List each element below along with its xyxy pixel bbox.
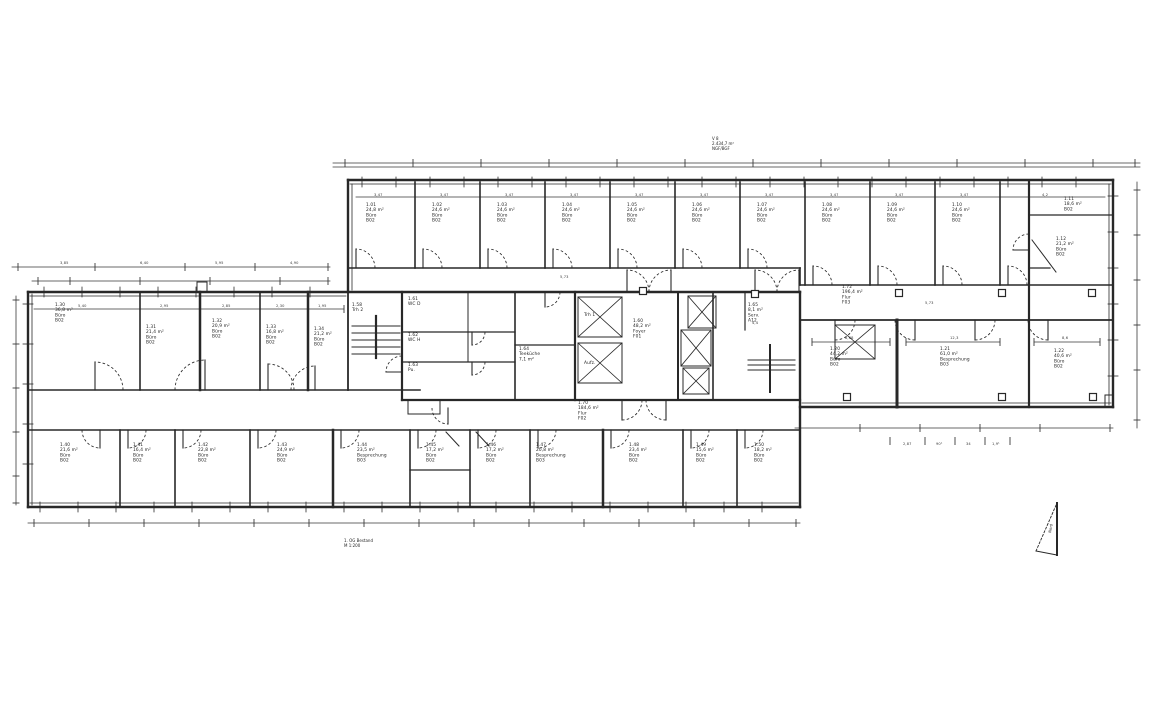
dim-number: 3,47 (700, 193, 709, 197)
door-swing-arc (545, 292, 560, 307)
room-label: 1.2161,0 m²BesprechungB03 (940, 346, 970, 368)
room-label: 1.4720,8 m²BesprechungB03 (536, 442, 566, 464)
dim-number: 4,90 (290, 261, 299, 265)
door-swing-arc (356, 249, 375, 268)
door-swing-arc (472, 332, 485, 345)
door-swing-arc (258, 430, 276, 448)
room-label: 1.6048,2 m²FoyerF01 (633, 318, 651, 340)
north-arrow-icon: Nord (1047, 523, 1054, 533)
dim-number: 4,2 (1042, 193, 1048, 197)
column-symbol (1090, 394, 1097, 401)
annotation-bottom: 1. OG Bestand M 1:200 (344, 538, 373, 548)
dim-number: 6,40 (140, 261, 149, 265)
room-label: 1.61WC D (408, 296, 421, 307)
dim-number: 8,6 (1062, 336, 1069, 340)
room-label: 1.4617,2 m²BüroB02 (486, 442, 504, 464)
room-label: 1.1118,6 m²B02 (1064, 196, 1082, 212)
door-swing-arc (683, 249, 702, 268)
door-swing-arc (975, 320, 995, 340)
column-symbol (1089, 290, 1096, 297)
dim-number: 3,47 (895, 193, 904, 197)
room-label: 1.0124,8 m²BüroB02 (366, 202, 384, 224)
room-label: 1.0324,6 m²BüroB02 (497, 202, 515, 224)
dim-number: 90¹ (936, 442, 943, 446)
room-label: 1.4021,6 m²BüroB02 (60, 442, 78, 464)
dim-number: 5,40 (78, 304, 87, 308)
room-label: 1.4116,4 m²BüroB02 (133, 442, 151, 464)
room-label: Trh 1 (583, 312, 595, 318)
dim-number: 3,47 (505, 193, 514, 197)
dim-number: 3,47 (830, 193, 839, 197)
door-swing-arc (755, 270, 777, 292)
door-swing-arc (618, 249, 637, 268)
door-swing-arc (1008, 266, 1027, 285)
exterior-walls (28, 180, 1113, 507)
detail-line (446, 432, 459, 446)
room-label: 1.0424,6 m²BüroB02 (562, 202, 580, 224)
north-arrow-hypotenuse (1036, 503, 1057, 551)
dim-number: 3,47 (960, 193, 969, 197)
door-swing-arc (1013, 234, 1029, 250)
room-label: 1.3316,8 m²BüroB02 (266, 324, 284, 346)
room-label: 1.63Pu. (408, 362, 418, 373)
room-label: 1.3121,4 m²BüroB02 (146, 324, 164, 346)
column-symbol (999, 394, 1006, 401)
dim-number: 3,47 (635, 193, 644, 197)
dim-number: 1,9¹ (992, 442, 1000, 446)
room-label: 1.4517,2 m²BüroB02 (426, 442, 444, 464)
column-symbol (844, 394, 851, 401)
room-label: 1.58Trh 2 (351, 302, 363, 313)
column-symbol (640, 288, 647, 295)
door-swing-arc (488, 249, 507, 268)
dim-number: 3,47 (440, 193, 449, 197)
north-arrow-base (1036, 551, 1057, 555)
floor-plan-canvas: 3,473,473,473,473,473,473,473,473,473,47… (0, 0, 1150, 720)
door-swing-arc (553, 249, 572, 268)
door-swing-arc (943, 266, 962, 285)
door-swing-arc (878, 266, 897, 285)
room-label: 1.62WC H (408, 332, 420, 343)
room-label: 1.0624,6 m²BüroB02 (692, 202, 710, 224)
detail-lines (197, 240, 1113, 446)
room-label: 1.3036,8 m²BüroB02 (55, 302, 73, 324)
room-label: 1.0824,6 m²BüroB02 (822, 202, 840, 224)
room-label: 1.72196,4 m²FlurF03 (842, 284, 863, 306)
annotation-line: NGF/BGF (712, 146, 734, 151)
door-swing-arc (268, 364, 294, 390)
shaft-boxes (578, 296, 875, 394)
room-label: 1.4423,5 m²BesprechungB03 (357, 442, 387, 464)
room-label: 1.2044,2 m²BüroB02 (830, 346, 848, 368)
door-swing-arc (82, 430, 100, 448)
door-swing-arc (291, 366, 315, 390)
room-label: 1.0724,6 m²BüroB02 (757, 202, 775, 224)
dim-number: 12,3 (950, 336, 959, 340)
room-label: 1.70184,6 m²FlurF02 (578, 400, 599, 422)
room-label: 1.3220,9 m²BüroB02 (212, 318, 230, 340)
dim-number: 3,47 (765, 193, 774, 197)
room-label: 1.4324,9 m²BüroB02 (277, 442, 295, 464)
room-label: 1.0524,6 m²BüroB02 (627, 202, 645, 224)
detail-line (1032, 240, 1056, 272)
dim-number: 34 (966, 442, 971, 446)
door-swing-arc (646, 400, 666, 420)
door-swing-arc (611, 430, 629, 448)
dim-number: 1,95 (318, 304, 327, 308)
room-label: 1.4915,6 m²BüroB02 (696, 442, 714, 464)
door-swing-arc (386, 356, 402, 372)
room-label: 1.4222,8 m²BüroB02 (198, 442, 216, 464)
door-swing-arc (777, 270, 799, 292)
room-label: 1.1024,6 m²BüroB02 (952, 202, 970, 224)
interior-walls (28, 182, 1113, 507)
door-swing-arc (622, 400, 642, 420)
floor-plan-drawing: 3,473,473,473,473,473,473,473,473,473,47… (0, 0, 1150, 720)
dim-number: 2,30 (276, 304, 285, 308)
room-label: 1.64Teeküche7,1 m² (518, 346, 540, 362)
dim-number: 2,95 (160, 304, 169, 308)
north-arrow: Nord (1036, 503, 1057, 555)
annotation-top: V 8 2.434,7 m² NGF/BGF (712, 136, 734, 151)
door-swing-arc (649, 270, 671, 292)
room-label: 1.3421,2 m²BüroB02 (314, 326, 332, 348)
room-label: 1.4823,4 m²BüroB02 (629, 442, 647, 464)
door-swing-arc (423, 249, 442, 268)
annotation-line: M 1:200 (344, 543, 373, 548)
room-label: 1.0224,6 m²BüroB02 (432, 202, 450, 224)
dim-number: 5,73 (560, 275, 569, 279)
dim-number: 5,95 (215, 261, 224, 265)
dim-number: 3,85 (60, 261, 69, 265)
column-symbol (999, 290, 1006, 297)
room-labels: 1.0124,8 m²BüroB021.0224,6 m²BüroB021.03… (55, 196, 1082, 464)
dim-number: 2,85 (222, 304, 231, 308)
room-label: 1.5018,2 m²BüroB02 (754, 442, 772, 464)
room-label: 1.0924,6 m²BüroB02 (887, 202, 905, 224)
column-symbol (752, 291, 759, 298)
door-swing-arc (95, 362, 123, 390)
door-swing-arc (813, 266, 832, 285)
door-swing-arc (472, 362, 485, 375)
dim-number: 3,47 (374, 193, 383, 197)
door-arcs (82, 234, 1048, 448)
door-swing-arc (748, 249, 767, 268)
room-label: 1.658,1 m²Serv.A12 (748, 302, 763, 324)
room-label: 1.1221,2 m²BüroB02 (1056, 236, 1074, 258)
dim-number: 3,47 (570, 193, 579, 197)
dim-number: 2,87 (903, 442, 912, 446)
dim-number: 5,73 (925, 301, 934, 305)
column-symbol (896, 290, 903, 297)
room-label: 1.2240,6 m²BüroB02 (1054, 348, 1072, 370)
door-swing-arc (1028, 320, 1048, 340)
room-label: Aufz. (584, 360, 596, 366)
